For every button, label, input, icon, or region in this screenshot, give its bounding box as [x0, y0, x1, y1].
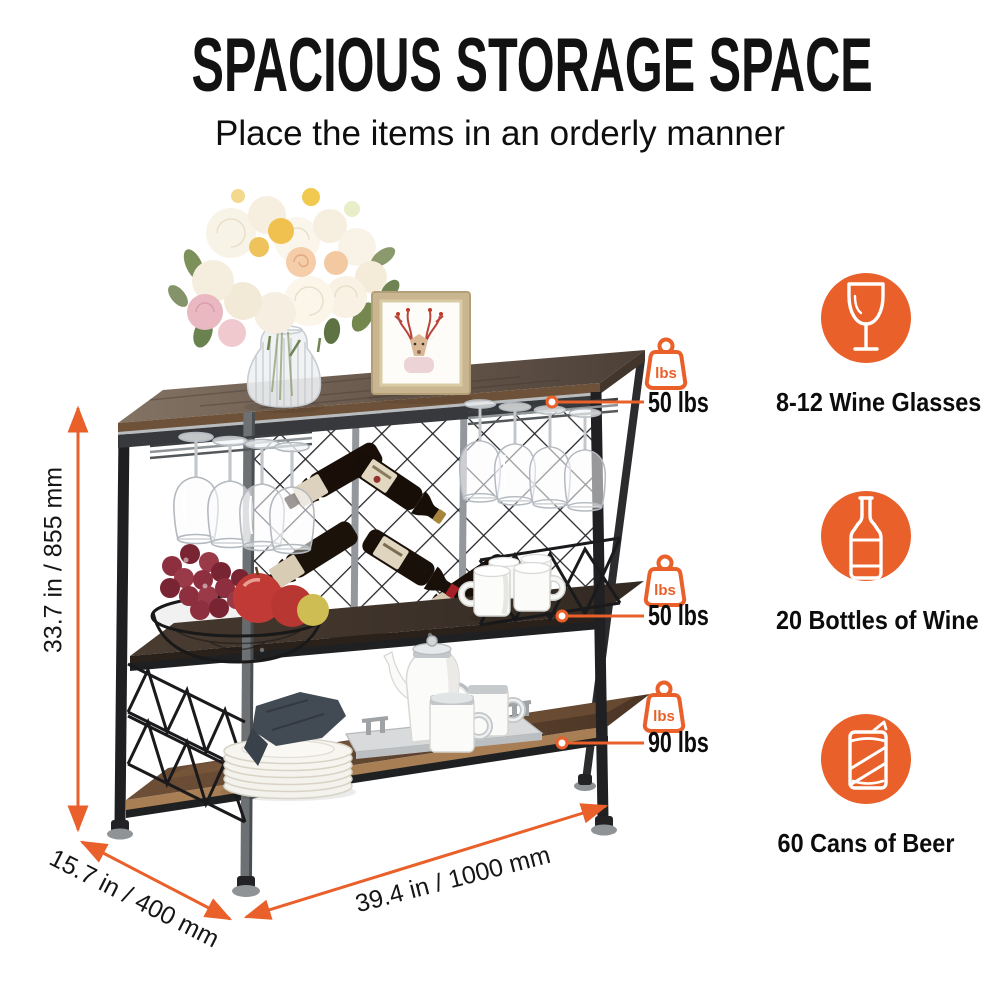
- feature-wine-glasses: 8-12 Wine Glasses: [766, 272, 966, 418]
- height-dimension-label: 33.7 in / 855 mm: [40, 467, 69, 653]
- capacity-label-bottom-shelf: 90 lbs: [648, 727, 709, 760]
- feature-label: 60 Cans of Beer: [776, 828, 956, 859]
- beer-can-icon: [820, 713, 912, 805]
- feature-label: 20 Bottles of Wine: [776, 605, 956, 636]
- feature-label: 8-12 Wine Glasses: [776, 387, 956, 418]
- wine-bottle-icon: [820, 490, 912, 582]
- picture-frame: [368, 292, 472, 404]
- flower-bouquet: [164, 188, 403, 356]
- weight-icon-unit-text: lbs: [654, 582, 676, 599]
- capacity-label-middle-shelf: 50 lbs: [648, 600, 709, 633]
- flower-vase: [244, 326, 324, 413]
- weight-lbs-icon: lbs: [642, 336, 690, 394]
- feature-beer-cans: 60 Cans of Beer: [766, 713, 966, 859]
- wine-glass-icon: [820, 272, 912, 364]
- capacity-label-top-shelf: 50 lbs: [648, 387, 709, 420]
- product-infographic: SPACIOUS STORAGE SPACE Place the items i…: [0, 0, 1000, 1000]
- weight-icon-unit-text: lbs: [655, 365, 677, 382]
- feature-wine-bottles: 20 Bottles of Wine: [766, 490, 966, 636]
- weight-icon-unit-text: lbs: [653, 708, 675, 725]
- plate-stack: [220, 739, 356, 802]
